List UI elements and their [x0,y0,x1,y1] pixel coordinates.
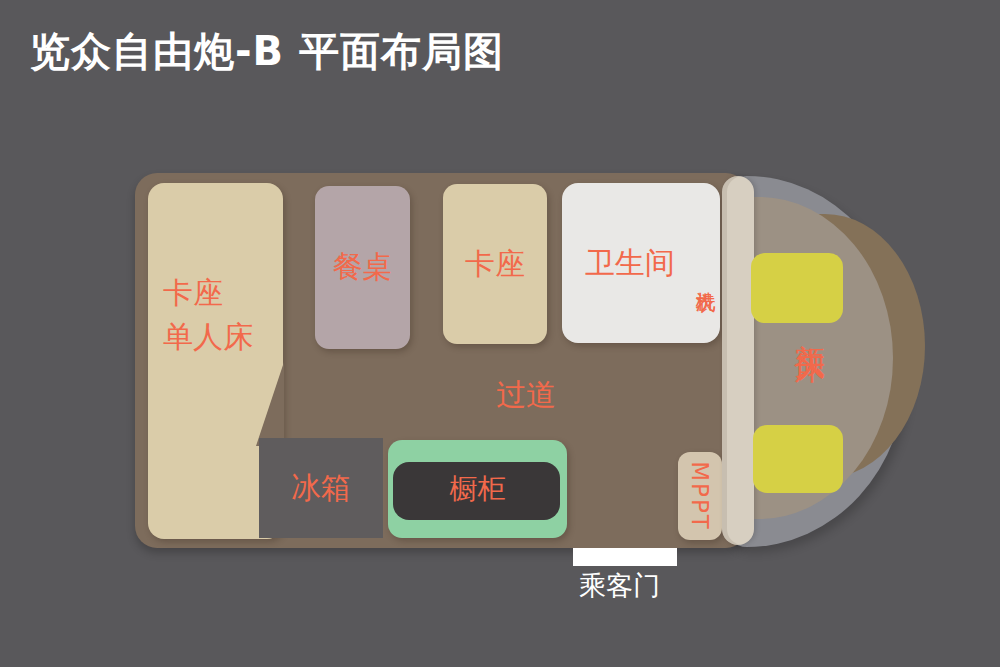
area-dining-table [315,186,410,349]
floorplan-canvas: 览众自由炮-B 平面布局图 卡座 单人床 餐桌 卡座 卫生间 洗衣机 过道 冰箱 [0,0,1000,667]
area-fridge [259,438,383,538]
cab-partition-pillar [722,176,754,545]
mppt-label: MPPT [687,461,713,531]
mppt-label-wrap: MPPT [678,452,722,540]
cab-seat-bottom [753,425,843,493]
passenger-door-label: 乘客门 [579,568,660,604]
cab-seat-top [751,253,843,323]
cabinet-counter-shape [393,462,560,520]
page-title: 览众自由炮-B 平面布局图 [30,24,504,79]
area-cabinet [388,440,567,538]
passenger-door-shape [573,548,677,566]
area-booth-seat [443,184,547,344]
area-bathroom [562,183,720,343]
